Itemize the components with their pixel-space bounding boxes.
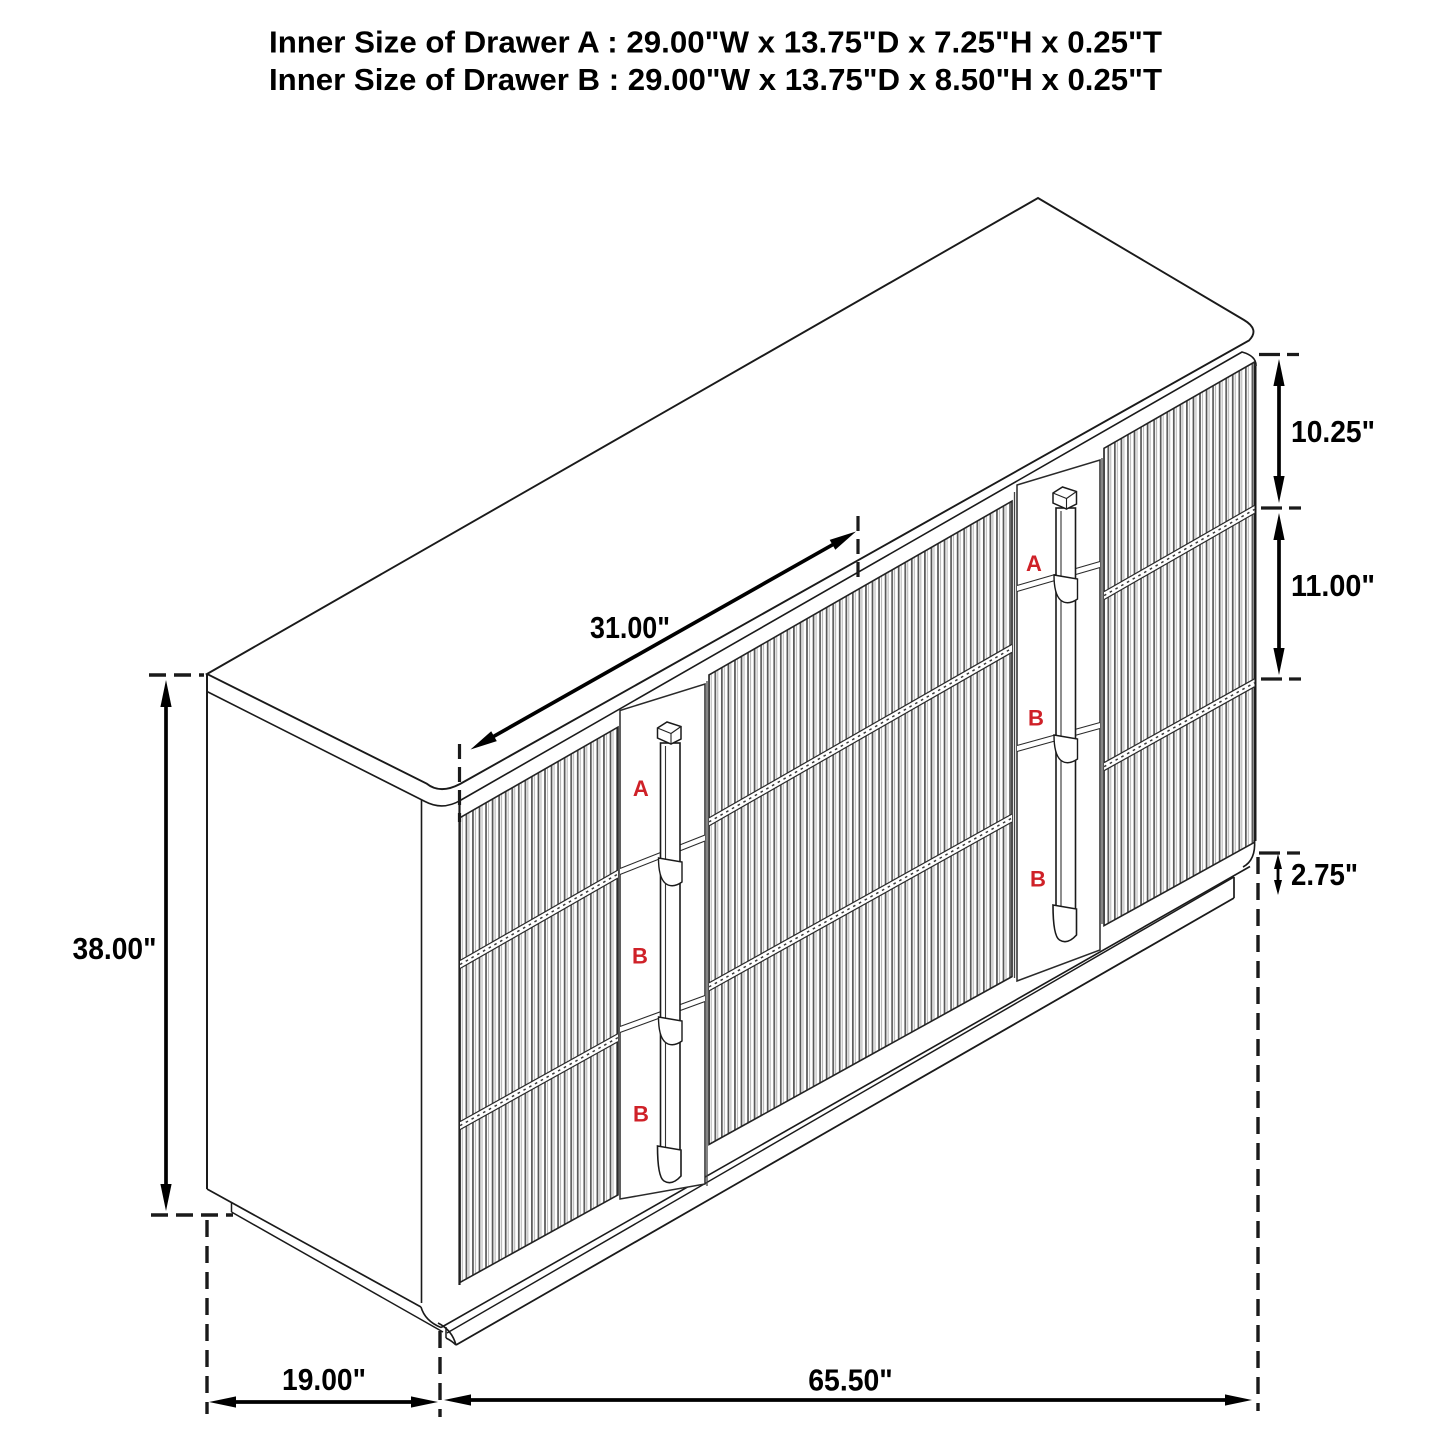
svg-text:38.00": 38.00" [73, 931, 157, 966]
svg-text:B: B [1030, 867, 1046, 892]
svg-text:2.75": 2.75" [1291, 857, 1358, 892]
svg-text:10.25": 10.25" [1291, 414, 1375, 449]
svg-text:A: A [633, 776, 649, 801]
svg-text:19.00": 19.00" [282, 1362, 366, 1397]
svg-text:65.50": 65.50" [808, 1363, 893, 1398]
svg-text:B: B [633, 1102, 649, 1127]
svg-text:A: A [1026, 551, 1042, 576]
svg-text:31.00": 31.00" [590, 610, 670, 645]
svg-text:Inner Size of Drawer B : 29.00: Inner Size of Drawer B : 29.00"W x 13.75… [269, 62, 1162, 97]
svg-text:B: B [632, 944, 648, 969]
svg-text:B: B [1028, 706, 1044, 731]
svg-text:Inner Size of Drawer A : 29.00: Inner Size of Drawer A : 29.00"W x 13.75… [269, 25, 1162, 60]
svg-text:11.00": 11.00" [1291, 568, 1375, 603]
